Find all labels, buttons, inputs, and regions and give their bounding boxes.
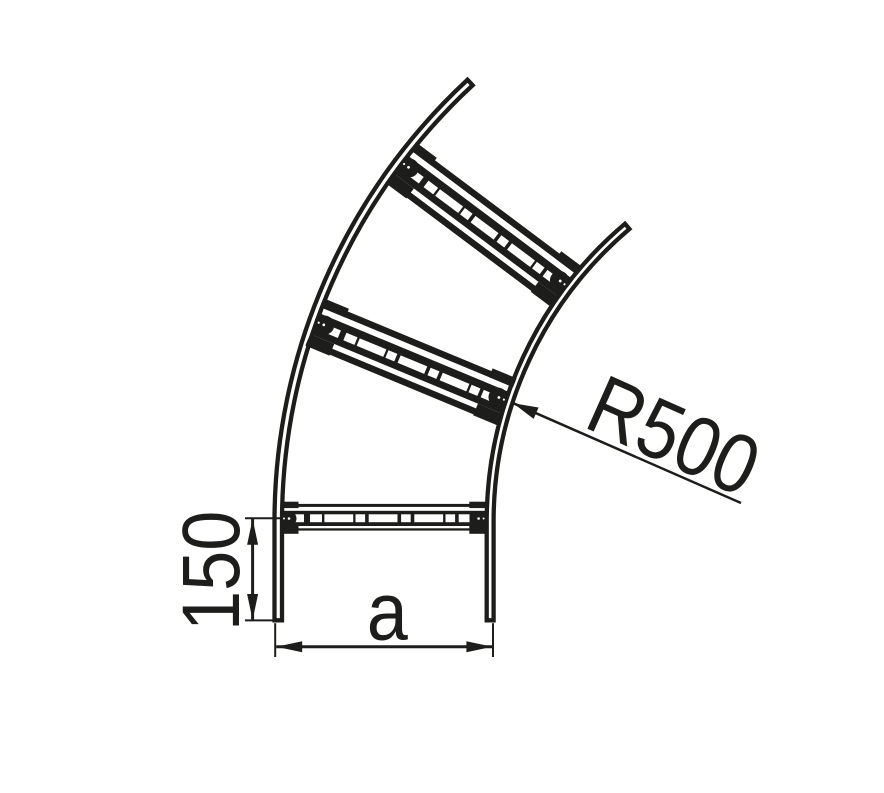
svg-text:a: a (367, 565, 409, 658)
svg-text:150: 150 (166, 511, 257, 631)
